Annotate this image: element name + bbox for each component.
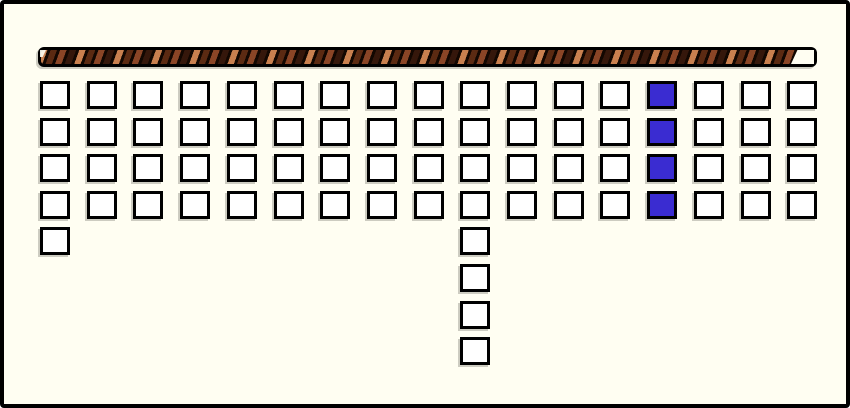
tile[interactable] xyxy=(40,81,70,109)
tile[interactable] xyxy=(133,118,163,146)
tile[interactable] xyxy=(600,154,630,182)
tile[interactable] xyxy=(460,81,490,109)
tile[interactable] xyxy=(787,191,817,219)
tile[interactable] xyxy=(367,118,397,146)
tile[interactable] xyxy=(741,154,771,182)
tile-selected[interactable] xyxy=(647,81,677,109)
tile[interactable] xyxy=(180,154,210,182)
tile[interactable] xyxy=(180,191,210,219)
tile[interactable] xyxy=(460,301,490,329)
tile[interactable] xyxy=(741,118,771,146)
tile[interactable] xyxy=(507,191,537,219)
tile[interactable] xyxy=(367,154,397,182)
tile[interactable] xyxy=(133,191,163,219)
tile[interactable] xyxy=(320,118,350,146)
tile[interactable] xyxy=(507,154,537,182)
tile[interactable] xyxy=(227,191,257,219)
tile[interactable] xyxy=(694,118,724,146)
tile[interactable] xyxy=(40,118,70,146)
tile[interactable] xyxy=(600,191,630,219)
game-window xyxy=(0,0,850,408)
tile[interactable] xyxy=(554,81,584,109)
tile[interactable] xyxy=(40,154,70,182)
tile[interactable] xyxy=(460,227,490,255)
tile[interactable] xyxy=(87,81,117,109)
tile[interactable] xyxy=(320,191,350,219)
tile[interactable] xyxy=(227,154,257,182)
tile[interactable] xyxy=(320,154,350,182)
tile[interactable] xyxy=(460,191,490,219)
tile[interactable] xyxy=(694,154,724,182)
tile[interactable] xyxy=(133,81,163,109)
tile-selected[interactable] xyxy=(647,191,677,219)
tile[interactable] xyxy=(180,118,210,146)
tile[interactable] xyxy=(87,191,117,219)
tile[interactable] xyxy=(460,337,490,365)
tile-selected[interactable] xyxy=(647,154,677,182)
tile[interactable] xyxy=(460,118,490,146)
tile[interactable] xyxy=(460,264,490,292)
tile[interactable] xyxy=(274,191,304,219)
tile[interactable] xyxy=(507,118,537,146)
tile[interactable] xyxy=(367,191,397,219)
tile[interactable] xyxy=(414,81,444,109)
tile[interactable] xyxy=(554,191,584,219)
tile[interactable] xyxy=(694,191,724,219)
tile[interactable] xyxy=(367,81,397,109)
tile[interactable] xyxy=(87,154,117,182)
tile[interactable] xyxy=(600,81,630,109)
tile[interactable] xyxy=(600,118,630,146)
tile[interactable] xyxy=(133,154,163,182)
tile[interactable] xyxy=(741,191,771,219)
tile[interactable] xyxy=(274,118,304,146)
tile[interactable] xyxy=(227,118,257,146)
tile[interactable] xyxy=(741,81,771,109)
tile[interactable] xyxy=(40,227,70,255)
tile[interactable] xyxy=(274,154,304,182)
tile[interactable] xyxy=(274,81,304,109)
tile[interactable] xyxy=(460,154,490,182)
tile-selected[interactable] xyxy=(647,118,677,146)
tile[interactable] xyxy=(787,154,817,182)
tile-board xyxy=(4,4,846,404)
tile[interactable] xyxy=(414,118,444,146)
tile[interactable] xyxy=(554,118,584,146)
tile[interactable] xyxy=(787,81,817,109)
tile[interactable] xyxy=(320,81,350,109)
tile[interactable] xyxy=(87,118,117,146)
tile[interactable] xyxy=(787,118,817,146)
tile[interactable] xyxy=(227,81,257,109)
tile[interactable] xyxy=(414,154,444,182)
tile[interactable] xyxy=(507,81,537,109)
tile[interactable] xyxy=(694,81,724,109)
tile[interactable] xyxy=(414,191,444,219)
tile[interactable] xyxy=(554,154,584,182)
tile[interactable] xyxy=(40,191,70,219)
tile[interactable] xyxy=(180,81,210,109)
